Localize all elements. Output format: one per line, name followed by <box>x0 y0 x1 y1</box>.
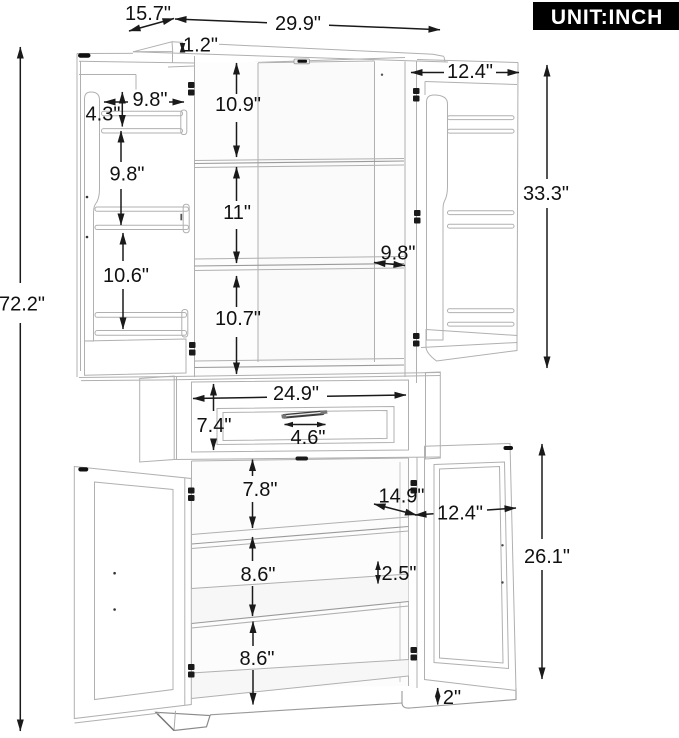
svg-text:11": 11" <box>223 202 251 224</box>
svg-text:4.3": 4.3" <box>86 104 121 126</box>
svg-text:1.2": 1.2" <box>183 35 218 57</box>
svg-text:24.9": 24.9" <box>273 383 319 405</box>
svg-text:8.6": 8.6" <box>240 648 275 670</box>
svg-text:14.9": 14.9" <box>378 486 424 508</box>
svg-text:UNIT:INCH: UNIT:INCH <box>551 6 663 29</box>
svg-text:2": 2" <box>443 687 461 709</box>
svg-text:9.8": 9.8" <box>381 243 416 265</box>
svg-text:9.8": 9.8" <box>110 164 145 186</box>
svg-text:33.3": 33.3" <box>523 183 569 205</box>
svg-text:12.4": 12.4" <box>447 61 493 83</box>
svg-text:8.6": 8.6" <box>241 564 276 586</box>
svg-text:72.2": 72.2" <box>0 294 45 316</box>
svg-text:29.9": 29.9" <box>275 13 321 35</box>
svg-text:26.1": 26.1" <box>524 546 570 568</box>
svg-text:15.7": 15.7" <box>125 3 171 25</box>
svg-text:7.4": 7.4" <box>197 415 232 437</box>
svg-text:7.8": 7.8" <box>243 479 278 501</box>
svg-text:2.5": 2.5" <box>382 563 417 585</box>
svg-text:9.8": 9.8" <box>133 89 168 111</box>
svg-text:12.4": 12.4" <box>437 503 483 525</box>
svg-text:10.7": 10.7" <box>215 308 261 330</box>
svg-text:10.9": 10.9" <box>215 94 261 116</box>
svg-text:10.6": 10.6" <box>103 265 149 287</box>
svg-text:4.6": 4.6" <box>291 427 326 449</box>
